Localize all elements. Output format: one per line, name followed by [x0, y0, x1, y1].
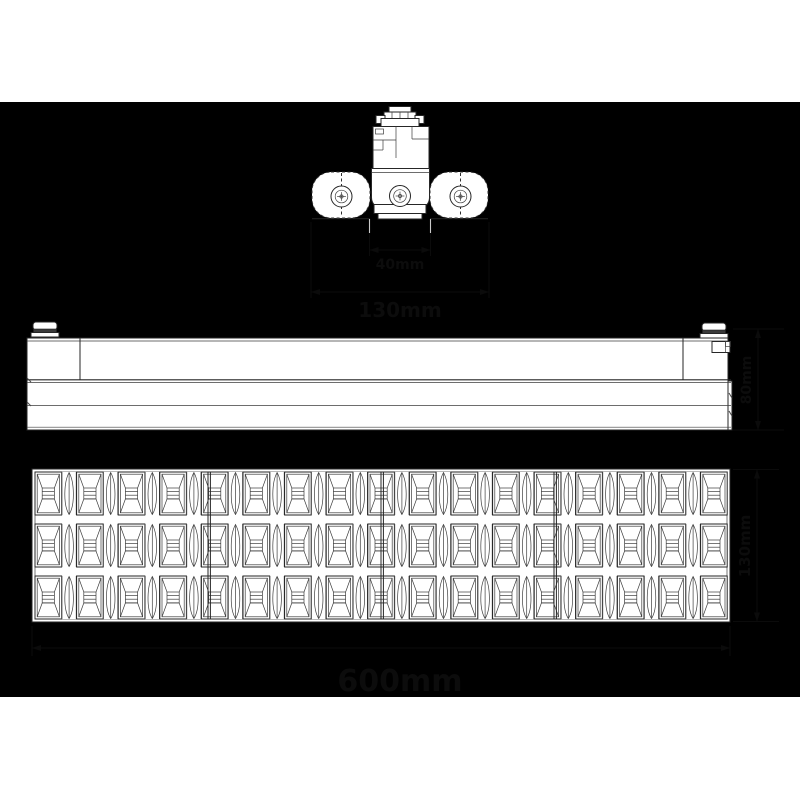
side-view [27, 322, 732, 430]
louver-cell-square [659, 524, 686, 567]
louver-cell-square [201, 524, 228, 567]
louver-cell-square [493, 576, 520, 619]
louver-cell-leaf [561, 472, 576, 515]
louver-cell-square [326, 472, 353, 515]
end-connector-box [712, 342, 730, 353]
louver-cell-square [493, 472, 520, 515]
louver-cell-square [160, 472, 187, 515]
dimension-label: 130mm [358, 298, 441, 322]
louver-cell-square [243, 472, 270, 515]
louver-cell-leaf [186, 576, 201, 619]
louver-cell-square [285, 524, 312, 567]
louver-cell-square [77, 576, 104, 619]
louver-cell-square [285, 576, 312, 619]
louver-cell-square [701, 576, 728, 619]
louver-cell-leaf [228, 524, 243, 567]
louver-cell-square [243, 524, 270, 567]
louver-cell-leaf [103, 524, 118, 567]
louver-cell-square [35, 472, 62, 515]
louver-cell-leaf [353, 472, 368, 515]
louver-cell-leaf [602, 472, 617, 515]
louver-cell-square [201, 472, 228, 515]
louver-cell-leaf [686, 472, 701, 515]
louver-cell-leaf [644, 524, 659, 567]
louver-cell-leaf [311, 472, 326, 515]
louver-cell-leaf [478, 524, 493, 567]
louver-cell-square [409, 472, 436, 515]
louver-cell-leaf [436, 524, 451, 567]
louver-cell-leaf [602, 576, 617, 619]
page: 40mm 130mm 80mm 130mm 600mm [0, 0, 800, 800]
louver-cell-leaf [478, 472, 493, 515]
louver-cell-square [77, 524, 104, 567]
louver-cell-leaf [186, 524, 201, 567]
louver-cell-leaf [394, 576, 409, 619]
louver-cell-square [118, 524, 145, 567]
louver-cell-square [118, 576, 145, 619]
dimension-label: 130mm [736, 515, 754, 578]
louver-cell-square [409, 524, 436, 567]
adapter-body [373, 127, 429, 169]
louver-cell-leaf [62, 472, 77, 515]
louver-cell-square [701, 472, 728, 515]
louver-cell-leaf [145, 472, 160, 515]
louver-cell-square [576, 576, 603, 619]
louver-cell-leaf [394, 524, 409, 567]
louver-cell-leaf [311, 524, 326, 567]
louver-cell-square [326, 576, 353, 619]
louver-cell-leaf [270, 524, 285, 567]
louver-cell-leaf [62, 576, 77, 619]
louver-cell-leaf [519, 472, 534, 515]
louver-cell-leaf [353, 576, 368, 619]
dimension-label: 600mm [337, 664, 462, 699]
louver-cell-leaf [228, 472, 243, 515]
louver-cell-leaf [602, 524, 617, 567]
louver-cell-leaf [436, 576, 451, 619]
louver-cell-leaf [686, 576, 701, 619]
louver-cell-square [409, 576, 436, 619]
louver-cell-square [617, 472, 644, 515]
louver-cell-leaf [145, 524, 160, 567]
louver-cell-leaf [394, 472, 409, 515]
louver-cell-leaf [519, 576, 534, 619]
dimension-label: 40mm [376, 257, 425, 273]
louver-cell-leaf [62, 524, 77, 567]
louver-cell-square [243, 576, 270, 619]
screw-center [390, 186, 411, 207]
screw-right [450, 186, 471, 207]
louver-cell-square [576, 524, 603, 567]
dimension-label: 80mm [739, 356, 755, 405]
louver-cell-leaf [644, 472, 659, 515]
louver-cell-leaf [353, 524, 368, 567]
louver-cell-square [35, 524, 62, 567]
louver-cell-square [617, 524, 644, 567]
louver-cell-leaf [186, 472, 201, 515]
louver-cell-leaf [436, 472, 451, 515]
louver-cell-square [576, 472, 603, 515]
adapter-collar [381, 119, 419, 127]
louver-cell-leaf [270, 576, 285, 619]
louver-cell-square [451, 524, 478, 567]
louver-cell-square [659, 472, 686, 515]
bottom-view [32, 469, 730, 622]
louver-cell-square [118, 472, 145, 515]
louver-cell-leaf [103, 576, 118, 619]
louver-cell-leaf [644, 576, 659, 619]
louver-cell-square [201, 576, 228, 619]
louver-cell-leaf [478, 576, 493, 619]
louver-cell-leaf [561, 524, 576, 567]
louver-cell-leaf [270, 472, 285, 515]
louver-cell-square [326, 524, 353, 567]
louver-cell-square [160, 524, 187, 567]
twist-knob-left [31, 322, 59, 337]
louver-cell-leaf [228, 576, 243, 619]
twist-knob-right [700, 323, 728, 338]
fixture-body [27, 338, 728, 430]
screw-left [331, 186, 352, 207]
louver-cell-leaf [145, 576, 160, 619]
louver-cell-square [451, 576, 478, 619]
louver-cell-square [701, 524, 728, 567]
louver-cell-square [493, 524, 520, 567]
louver-cell-leaf [311, 576, 326, 619]
louver-cell-square [617, 576, 644, 619]
technical-drawing: 40mm 130mm 80mm 130mm 600mm [0, 0, 800, 800]
louver-cell-leaf [519, 524, 534, 567]
louver-cell-square [160, 576, 187, 619]
louver-cell-square [451, 472, 478, 515]
louver-cell-leaf [561, 576, 576, 619]
louver-cell-square [285, 472, 312, 515]
louver-cell-square [659, 576, 686, 619]
louver-cell-leaf [103, 472, 118, 515]
louver-cell-leaf [686, 524, 701, 567]
louver-cell-square [77, 472, 104, 515]
lens-base [378, 214, 422, 220]
louver-cell-square [35, 576, 62, 619]
